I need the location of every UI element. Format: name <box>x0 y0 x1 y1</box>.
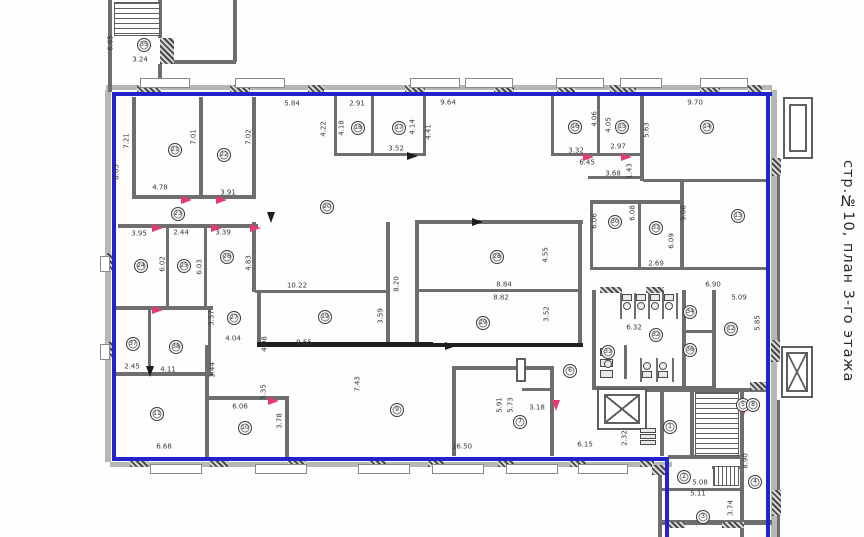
room-number-circle: 20 <box>320 200 334 214</box>
wall <box>592 290 596 388</box>
dimension-label: 6.02 <box>160 256 167 272</box>
room-number-circle: 32 <box>649 328 663 342</box>
wall <box>777 158 780 348</box>
boundary-line <box>112 92 116 461</box>
door-swing-marker <box>250 224 261 232</box>
room-number-circle: 15 <box>615 120 629 134</box>
hatched-wall-segment <box>750 382 766 390</box>
plumbing-fixture <box>640 434 656 439</box>
window-sill <box>100 256 110 272</box>
door-swing-marker <box>552 400 560 411</box>
window-sill <box>700 78 748 88</box>
wall <box>415 224 419 344</box>
wall <box>624 345 627 379</box>
door-swing-marker <box>621 153 632 161</box>
plumbing-fixture <box>650 294 660 301</box>
room-number-circle: 16 <box>568 120 582 134</box>
window-sill <box>506 464 558 474</box>
dimension-label: 5.35 <box>261 384 268 400</box>
dimension-label: 3.78 <box>277 413 284 429</box>
dimension-label: 5.63 <box>644 122 651 138</box>
dimension-label: 3.59 <box>378 308 385 324</box>
dimension-label: 3.32 <box>568 148 584 155</box>
room-number-circle: 21 <box>168 143 182 157</box>
window-sill <box>432 464 484 474</box>
door-swing-marker <box>181 196 192 204</box>
dimension-label: 4.08 <box>262 336 269 352</box>
room-number-circle: 36 <box>683 343 697 357</box>
dimension-label: 6.08 <box>630 205 637 221</box>
room-number-circle: 33 <box>601 345 615 359</box>
room-number-circle: 6 <box>563 364 577 378</box>
dimension-label: 8.82 <box>493 295 509 302</box>
window-sill <box>150 464 202 474</box>
wall <box>386 222 390 346</box>
dimension-label: 3.57 <box>209 310 216 326</box>
dimension-label: 16.50 <box>452 444 472 451</box>
room-number-circle: 38 <box>169 340 183 354</box>
dimension-label: 5.11 <box>690 491 706 498</box>
room-number-circle: 17 <box>392 121 406 135</box>
dimension-label: 3.44 <box>210 362 217 378</box>
wall <box>415 289 579 292</box>
hatched-wall-segment <box>160 38 174 64</box>
wall <box>690 392 694 456</box>
wall <box>656 358 658 382</box>
room-number-circle: 34 <box>683 305 697 319</box>
room-number-circle: 19 <box>318 310 332 324</box>
room-number-circle: 29 <box>476 316 490 330</box>
dimension-label: 7.02 <box>246 129 253 145</box>
wall <box>522 388 554 391</box>
dimension-label: 4.04 <box>225 336 241 343</box>
toilet-bowl-icon <box>604 360 612 368</box>
hatched-wall-segment <box>722 522 744 528</box>
plan-title: стр.№10, план 3-го этажа <box>840 160 856 490</box>
wall <box>371 95 374 155</box>
hatched-wall-segment <box>600 287 622 293</box>
dimension-label: 8.65 <box>114 164 121 180</box>
wall <box>285 396 289 458</box>
floor-plan-canvas: стр.№10, план 3-го этажа 352122232018171… <box>0 0 864 537</box>
wall <box>672 358 674 382</box>
dimension-label: 2.97 <box>610 144 626 151</box>
hatched-wall-segment <box>772 158 781 176</box>
plumbing-fixture <box>642 371 652 378</box>
door-swing-marker <box>152 224 163 232</box>
boundary-line <box>665 457 669 537</box>
wall <box>132 97 136 197</box>
dimension-label: 4.41 <box>426 124 433 140</box>
dimension-label: 10.22 <box>287 283 307 290</box>
plumbing-fixture <box>658 371 668 378</box>
window-sill <box>100 344 110 360</box>
plumbing-fixture <box>636 294 646 301</box>
room-number-circle: 31 <box>649 221 663 235</box>
plumbing-fixture <box>622 294 632 301</box>
room-number-circle: 28 <box>490 250 504 264</box>
dimension-label: 7.21 <box>124 133 131 149</box>
wall <box>452 366 554 370</box>
wall <box>680 182 684 270</box>
wall <box>590 200 682 204</box>
hatched-wall-segment <box>772 490 781 516</box>
window-sill <box>410 78 460 88</box>
dimension-label: 4.83 <box>246 255 253 271</box>
dimension-label: 9.70 <box>687 100 703 107</box>
wall <box>676 293 678 319</box>
wall <box>148 310 151 372</box>
toilet-bowl-icon <box>659 362 667 370</box>
door-swing-marker <box>152 306 163 314</box>
wall <box>590 267 770 270</box>
dimension-label: 6.09 <box>669 233 676 249</box>
dimension-label: 2.91 <box>349 101 365 108</box>
dimension-label: 8.20 <box>394 276 401 292</box>
room-number-circle: 13 <box>731 209 745 223</box>
window-sill <box>578 464 628 474</box>
door-swing-marker <box>268 397 279 405</box>
dimension-label: 5.09 <box>731 295 747 302</box>
room-number-circle: 4 <box>748 475 762 489</box>
dimension-label: 6.03 <box>197 259 204 275</box>
wall <box>643 179 769 182</box>
room-number-circle: 11 <box>150 407 164 421</box>
wall <box>199 97 203 197</box>
dimension-label: 2.44 <box>173 230 189 237</box>
dimension-label: 7.01 <box>191 129 198 145</box>
dimension-label: 2.45 <box>124 364 140 371</box>
dimension-label: 5.73 <box>508 397 515 413</box>
shaft-outline <box>516 358 526 382</box>
dimension-label: 3.24 <box>132 57 148 64</box>
boundary-line <box>766 92 770 537</box>
toilet-bowl-icon <box>643 362 651 370</box>
wall <box>233 0 237 62</box>
dimension-label: 6.65 <box>108 35 115 51</box>
wall <box>682 290 686 388</box>
wall <box>115 306 213 310</box>
dimension-label: 4.55 <box>543 247 550 263</box>
wall <box>638 203 641 269</box>
shaft-outline <box>789 104 807 152</box>
room-number-circle: 30 <box>608 215 622 229</box>
dimension-label: 6.06 <box>592 213 599 229</box>
dimension-label: 4.06 <box>592 111 599 127</box>
room-number-circle: 7 <box>513 415 527 429</box>
dimension-label: 3.95 <box>131 231 147 238</box>
dimension-label: 6.68 <box>156 444 172 451</box>
wall <box>551 95 554 155</box>
room-number-circle: 12 <box>724 322 738 336</box>
dimension-label: 3.68 <box>605 171 621 178</box>
window-sill <box>235 78 285 88</box>
room-number-circle: 18 <box>351 121 365 135</box>
plumbing-fixture <box>600 370 613 378</box>
wall <box>550 366 554 456</box>
dimension-label: 3.18 <box>529 405 545 412</box>
elevator-shaft-icon <box>604 394 640 424</box>
dimension-label: 3.74 <box>728 500 735 516</box>
door-marker <box>267 212 275 223</box>
toilet-bowl-icon <box>623 302 631 310</box>
door-marker <box>472 218 483 226</box>
dimension-label: 5.84 <box>284 101 300 108</box>
room-number-circle: 8 <box>746 398 760 412</box>
room-number-circle: 26 <box>220 250 234 264</box>
elevator-shaft-icon <box>786 352 808 392</box>
wall <box>415 220 583 224</box>
wall <box>255 290 389 293</box>
boundary-line <box>112 92 772 96</box>
plumbing-fixture <box>640 428 656 433</box>
dimension-label: 8.90 <box>743 453 750 469</box>
wall <box>252 222 256 292</box>
wall <box>640 95 644 181</box>
dimension-label: 2.32 <box>622 430 629 446</box>
wall <box>257 342 433 347</box>
plumbing-fixture <box>664 294 674 301</box>
dimension-label: 3.39 <box>215 230 231 237</box>
wall <box>777 400 780 537</box>
room-number-circle: 23 <box>171 207 185 221</box>
wall <box>118 224 258 228</box>
dimension-label: 6.32 <box>626 325 642 332</box>
door-swing-marker <box>216 196 227 204</box>
dimension-label: 5.08 <box>692 480 708 487</box>
window-sill <box>556 78 604 88</box>
dimension-label: 4.11 <box>160 367 176 374</box>
room-number-circle: 35 <box>137 38 151 52</box>
door-marker <box>445 342 456 350</box>
dimension-label: 1.43 <box>627 163 634 179</box>
boundary-line <box>112 457 669 461</box>
dimension-label: 5.91 <box>497 397 504 413</box>
room-number-circle: 27 <box>227 311 241 325</box>
room-number-circle: 22 <box>217 148 231 162</box>
dimension-label: 3.52 <box>544 306 551 322</box>
staircase <box>713 466 739 486</box>
window-sill <box>255 464 307 474</box>
toilet-bowl-icon <box>665 302 673 310</box>
dimension-label: 9.64 <box>440 100 456 107</box>
toilet-bowl-icon <box>651 302 659 310</box>
dimension-label: 3.91 <box>220 190 236 197</box>
room-number-circle: 14 <box>700 120 714 134</box>
wall <box>204 228 207 308</box>
toilet-bowl-icon <box>637 302 645 310</box>
wall <box>252 97 256 197</box>
wall <box>132 195 256 199</box>
dimension-label: 3.52 <box>388 146 404 153</box>
room-number-circle: 2 <box>677 470 691 484</box>
dimension-label: 5.85 <box>755 315 762 331</box>
dimension-label: 2.69 <box>648 261 664 268</box>
window-sill <box>620 78 662 88</box>
room-number-circle: 25 <box>177 259 191 273</box>
hatched-wall-segment <box>652 465 666 475</box>
wall <box>415 343 583 347</box>
staircase <box>114 2 160 36</box>
window-sill <box>465 78 513 88</box>
plumbing-fixture <box>640 440 656 445</box>
hatched-wall-segment <box>771 340 780 362</box>
window-sill <box>140 78 190 88</box>
wall <box>174 60 236 64</box>
dimension-label: 4.18 <box>339 120 346 136</box>
door-marker <box>407 152 418 160</box>
dimension-label: 4.05 <box>606 117 613 133</box>
dimension-label: 8.84 <box>496 282 512 289</box>
room-number-circle: 1 <box>663 420 677 434</box>
dimension-label: 4.14 <box>410 119 417 135</box>
wall <box>640 358 642 382</box>
door-marker <box>146 366 154 377</box>
dimension-label: 6.45 <box>579 160 595 167</box>
dimension-label: 6.15 <box>577 442 593 449</box>
room-number-circle: 10 <box>238 421 252 435</box>
dimension-label: 6.06 <box>232 404 248 411</box>
wall <box>578 220 582 344</box>
dimension-label: 7.43 <box>355 376 362 392</box>
room-number-circle: 9 <box>390 403 404 417</box>
dimension-label: 4.78 <box>152 185 168 192</box>
wall <box>712 290 716 388</box>
wall <box>682 330 712 333</box>
window-sill <box>358 464 410 474</box>
dimension-label: 6.90 <box>705 282 721 289</box>
room-number-circle: 24 <box>134 259 148 273</box>
hatched-wall-segment <box>646 287 664 293</box>
room-number-circle: 37 <box>126 337 140 351</box>
room-number-circle: 3 <box>696 510 710 524</box>
staircase <box>695 392 739 456</box>
dimension-label: 9.06 <box>681 205 688 221</box>
dimension-label: 4.22 <box>321 121 328 137</box>
dimension-label: 9.55 <box>296 340 312 347</box>
outer-wall-band <box>105 90 111 462</box>
wall <box>658 465 662 537</box>
